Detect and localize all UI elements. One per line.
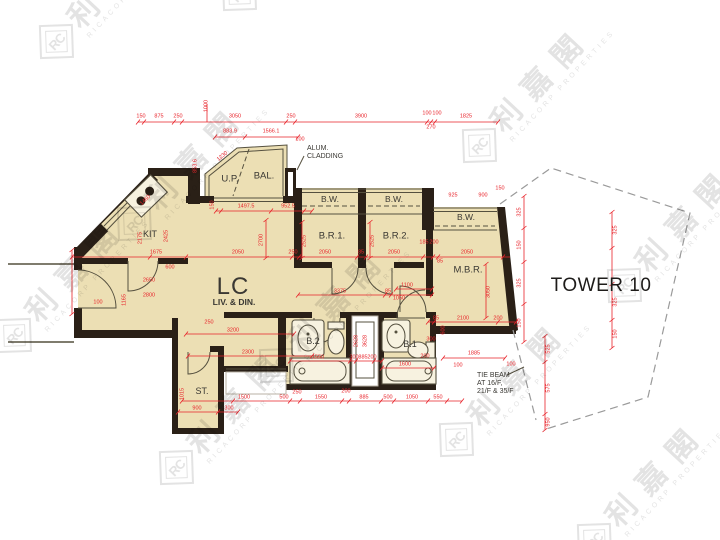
dimension-label: 600 bbox=[165, 265, 174, 271]
dimension-label: 250 bbox=[286, 114, 295, 120]
dimension-label: 85 bbox=[358, 250, 364, 256]
dimension-label: 883.9 bbox=[223, 129, 237, 135]
dimension-label: 1165 bbox=[122, 294, 128, 306]
dimension-label: 1675 bbox=[150, 250, 162, 256]
dimension-label: 300 bbox=[426, 337, 435, 343]
alum-cladding-label: ALUM. CLADDING bbox=[307, 145, 343, 161]
dimension-label: 1100 bbox=[401, 283, 413, 289]
dimension-label: 1566.1 bbox=[263, 129, 280, 135]
dimension-label: 325 bbox=[517, 207, 523, 216]
dimension-label: 875 bbox=[154, 114, 163, 120]
dimension-label: 885 bbox=[359, 395, 368, 401]
dimension-label: 2425 bbox=[164, 230, 170, 242]
dimension-label: 1050 bbox=[406, 395, 418, 401]
dimension-label: 1600 bbox=[399, 362, 411, 368]
dimension-label: 575 bbox=[546, 383, 552, 392]
dimension-label: 950 bbox=[546, 417, 552, 426]
dimension-label: 2800 bbox=[143, 293, 155, 299]
dimension-label: 3200 bbox=[227, 328, 239, 334]
dimension-label: 3628 bbox=[363, 335, 369, 347]
dimension-label: 100 bbox=[93, 300, 102, 306]
dimension-label: 500 bbox=[279, 395, 288, 401]
dimension-label: 200 bbox=[420, 354, 429, 360]
dimension-label: 85 bbox=[433, 316, 439, 322]
dimension-label: 100 bbox=[453, 363, 462, 369]
tie-beam-label: TIE BEAM AT 16/F, 21/F & 35/F bbox=[477, 372, 514, 396]
dimension-label: 100 bbox=[422, 111, 431, 117]
dimension-label: 2700 bbox=[259, 234, 265, 246]
room-label-master-bedroom: M.B.R. bbox=[453, 266, 482, 277]
dimension-label: 100 bbox=[295, 137, 304, 143]
dimension-label: 85 bbox=[385, 289, 391, 295]
dimension-label: 2050 bbox=[388, 250, 400, 256]
dimension-label: 3050 bbox=[229, 114, 241, 120]
room-label-living-dining: LIV. & DIN. bbox=[213, 298, 256, 308]
dimension-label: 885 bbox=[358, 355, 367, 361]
dimension-label: 200 bbox=[341, 389, 350, 395]
duct-shaft bbox=[352, 316, 378, 386]
dimension-label: 1550 bbox=[312, 355, 324, 361]
dimension-label: 200 bbox=[493, 316, 502, 322]
dimension-label: 325 bbox=[613, 225, 619, 234]
dimension-label: 150 bbox=[517, 240, 523, 249]
room-label-bathroom-2: B.2 bbox=[306, 336, 320, 346]
dimension-label: 1015 bbox=[180, 388, 186, 400]
room-label-utility-platform: U.P. bbox=[221, 175, 238, 186]
dimension-label: 1550 bbox=[315, 395, 327, 401]
dimension-label: 2100 bbox=[457, 316, 469, 322]
room-label-bay-window-1: B.W. bbox=[321, 195, 339, 205]
dimension-label: 2525 bbox=[370, 235, 376, 247]
room-label-bedroom-2: B.R.2. bbox=[383, 232, 409, 243]
dimension-label: 853.6 bbox=[193, 159, 199, 173]
dimension-label: 100 bbox=[506, 362, 515, 368]
dimension-label: 200 bbox=[367, 355, 376, 361]
dimension-label: 900 bbox=[478, 193, 487, 199]
dimension-label: 250 bbox=[204, 320, 213, 326]
tower-outline bbox=[500, 168, 690, 430]
dimension-label: 2050 bbox=[319, 250, 331, 256]
dimension-label: 150 bbox=[136, 114, 145, 120]
dimension-label: 185 bbox=[419, 240, 428, 246]
dimension-label: 1500 bbox=[238, 395, 250, 401]
dimension-label: 3375 bbox=[334, 289, 346, 295]
dimension-label: 2650 bbox=[143, 278, 155, 284]
room-label-bedroom-1: B.R.1. bbox=[319, 232, 345, 243]
dimension-label: 925 bbox=[448, 193, 457, 199]
dimension-label: 150 bbox=[613, 329, 619, 338]
room-label-bay-window-3: B.W. bbox=[457, 213, 475, 223]
dimension-label: 100 bbox=[432, 111, 441, 117]
dimension-label: 2628 bbox=[354, 335, 360, 347]
dimension-label: 250 bbox=[173, 114, 182, 120]
dimension-label: 3900 bbox=[355, 114, 367, 120]
room-label-kitchen: KIT bbox=[143, 229, 157, 239]
dimension-label: 270 bbox=[426, 125, 435, 131]
dimension-label: 85 bbox=[437, 259, 443, 265]
dimension-label: 525 bbox=[546, 344, 552, 353]
dimension-label: 200 bbox=[429, 240, 438, 246]
dimension-label: 2050 bbox=[232, 250, 244, 256]
dimension-label: 150 bbox=[210, 200, 216, 209]
dimension-label: 2050 bbox=[461, 250, 473, 256]
room-label-bathroom-1: B.1 bbox=[403, 339, 417, 349]
entrance-lobby bbox=[8, 264, 74, 342]
dimension-label: 1497.5 bbox=[238, 204, 255, 210]
dimension-label: 1050 bbox=[393, 296, 405, 302]
floor-plan-page: RC 利嘉閣 RICACORP PROPERTIES RC 利嘉閣 RICACO… bbox=[0, 0, 720, 540]
dimension-label: 550 bbox=[433, 395, 442, 401]
dimension-label: 250 bbox=[288, 250, 297, 256]
dimension-label: 325 bbox=[613, 297, 619, 306]
dimension-label: 600 bbox=[441, 325, 447, 334]
dimension-label: 900 bbox=[192, 406, 201, 412]
tower-label: TOWER 10 bbox=[551, 275, 652, 297]
dimension-label: 1000 bbox=[204, 100, 210, 112]
dimension-label: 250 bbox=[292, 390, 301, 396]
dimension-label: 3050 bbox=[486, 286, 492, 298]
dimension-label: 1825 bbox=[460, 114, 472, 120]
dimension-label: 300 bbox=[224, 406, 233, 412]
floor-plan-drawing bbox=[0, 0, 720, 540]
room-label-bay-window-2: B.W. bbox=[385, 195, 403, 205]
dimension-label: 500 bbox=[383, 395, 392, 401]
dimension-label: 300 bbox=[349, 355, 358, 361]
dimension-label: 952.5 bbox=[281, 204, 295, 210]
dimension-label: 2300 bbox=[242, 350, 254, 356]
ac-recess bbox=[226, 372, 286, 394]
dimension-label: 1885 bbox=[468, 351, 480, 357]
dimension-label: 325 bbox=[517, 278, 523, 287]
dimension-label: 2525 bbox=[302, 235, 308, 247]
room-label-store: ST. bbox=[195, 386, 208, 396]
dimension-label: 150 bbox=[517, 318, 523, 327]
room-label-balcony: BAL. bbox=[254, 172, 275, 183]
dimension-label: 150 bbox=[495, 186, 504, 192]
